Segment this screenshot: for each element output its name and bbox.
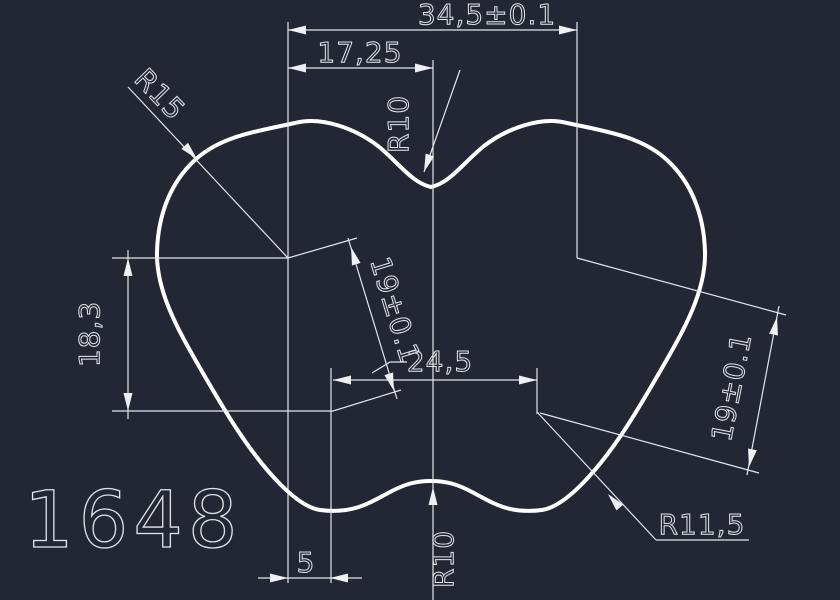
dim-radius-lower-label: R11,5 <box>659 508 746 541</box>
dim-width-bottom-centers-label: 24,5 <box>407 345 473 378</box>
dim-height-left-label: 18,3 <box>73 301 106 367</box>
dim-radius-bottom-center-label: R10 <box>427 530 460 588</box>
cad-drawing-canvas[interactable]: 34,5±0.1 17,25 R10 R15 18,3 19±0.1 <box>0 0 840 600</box>
dim-offset-left-bottom-label: 5 <box>297 546 316 579</box>
dim-width-half-left-label: 17,25 <box>317 36 402 69</box>
dim-radius-top-center-label: R10 <box>382 95 415 153</box>
dim-width-total-label: 34,5±0.1 <box>418 0 556 31</box>
drawing-number: 1648 <box>24 476 243 566</box>
